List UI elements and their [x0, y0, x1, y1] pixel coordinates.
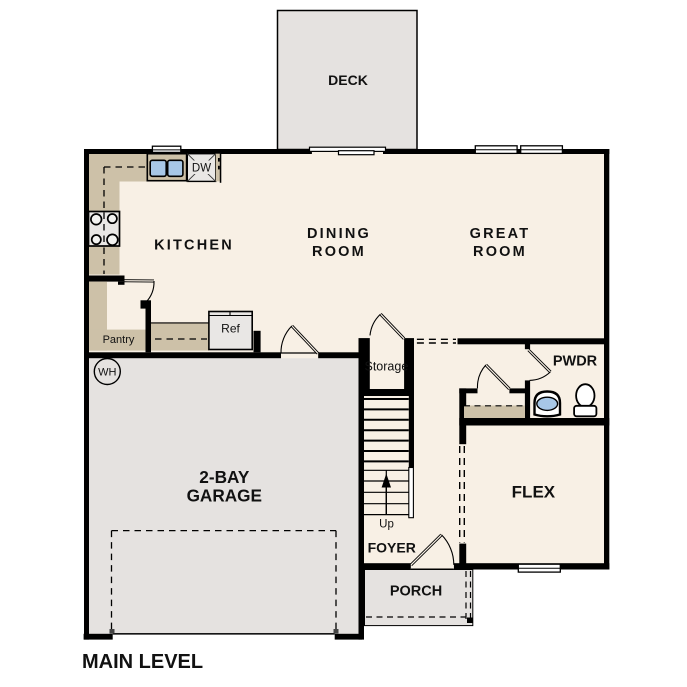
svg-text:ROOM: ROOM: [473, 244, 527, 260]
svg-text:PWDR: PWDR: [553, 354, 598, 370]
svg-text:DECK: DECK: [328, 72, 368, 88]
svg-text:WH: WH: [98, 367, 116, 379]
svg-text:Ref: Ref: [221, 322, 240, 336]
svg-text:Storage: Storage: [365, 360, 409, 374]
svg-text:PORCH: PORCH: [390, 584, 442, 600]
svg-text:FOYER: FOYER: [368, 540, 416, 556]
svg-text:FLEX: FLEX: [512, 483, 556, 502]
svg-text:GARAGE: GARAGE: [187, 486, 262, 506]
svg-text:MAIN LEVEL: MAIN LEVEL: [82, 651, 203, 673]
svg-text:Up: Up: [379, 519, 394, 531]
svg-text:KITCHEN: KITCHEN: [154, 238, 234, 254]
svg-text:ROOM: ROOM: [312, 244, 366, 260]
svg-text:GREAT: GREAT: [470, 226, 531, 242]
svg-text:2-BAY: 2-BAY: [199, 467, 250, 487]
svg-text:DW: DW: [192, 163, 211, 175]
svg-text:Pantry: Pantry: [103, 334, 135, 346]
svg-text:DINING: DINING: [307, 226, 371, 242]
